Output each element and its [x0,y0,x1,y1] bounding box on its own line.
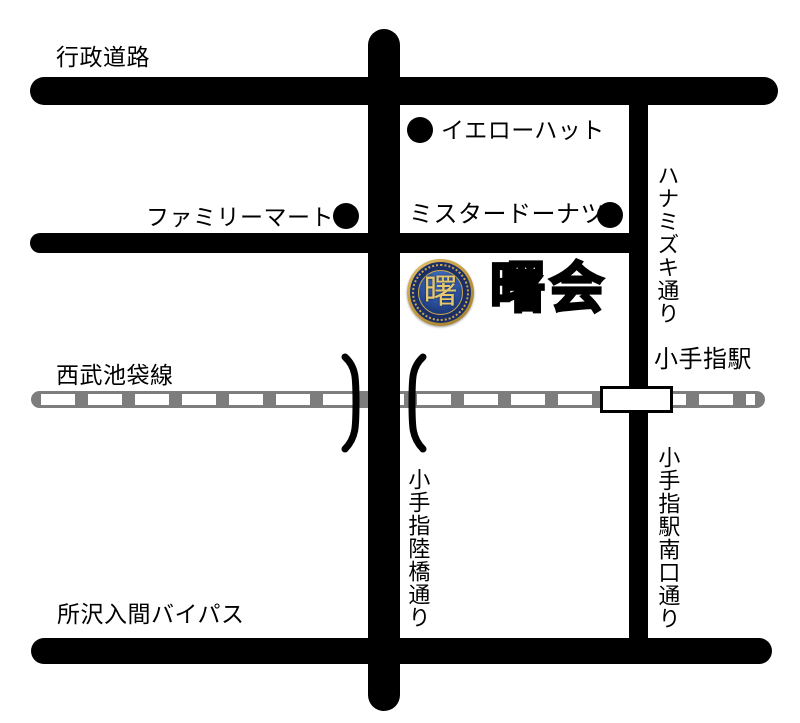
kotesashi-station-marker [600,386,673,413]
access-map: 行政道路 イエローハット ファミリーマート ミスタードーナツ 西武池袋線 小手指… [0,0,800,723]
family-mart-dot [333,203,359,229]
road-kotesashi-eki-minamiguchi-dori [629,90,648,650]
label-kotesashi-eki-minamiguchi-dori: 小手指駅南口通り [654,446,680,630]
destination-name: 曙会 [490,258,608,318]
label-kotesashi-rikkyo-dori: 小手指陸橋通り [404,468,430,629]
logo-inner-circle: 曙 [418,270,463,315]
label-mister-donut: ミスタードーナツ [409,202,605,228]
label-tokorozawa-iruma-bypass: 所沢入間バイパス [57,601,245,627]
label-kotesashi-station: 小手指駅 [654,347,752,373]
road-shopping-street [30,233,648,253]
label-seibu-ikebukuro-line: 西武池袋線 [56,362,174,388]
yellow-hat-dot [407,117,433,143]
label-gyosei-doro: 行政道路 [56,44,150,70]
logo-akebono-character: 曙 [424,276,458,310]
road-kotesashi-rikkyo-dori [368,29,400,711]
label-hanamizuki-dori: ハナミズキ通り [653,164,679,325]
akebono-kai-logo: 曙 [407,259,474,326]
road-gyosei-doro [30,77,778,105]
label-family-mart: ファミリーマート [146,204,334,230]
road-tokorozawa-iruma-bypass [31,638,772,664]
label-yellow-hat: イエローハット [441,117,605,143]
